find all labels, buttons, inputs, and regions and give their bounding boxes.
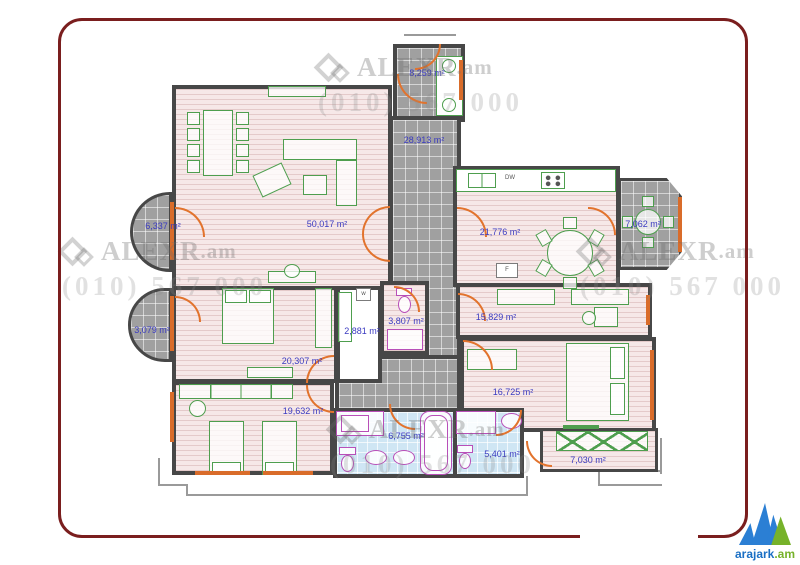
floorplan-page: { "plan": { "rooms": { "living": {"area"… (0, 0, 800, 565)
mountain-logo-icon (739, 503, 791, 545)
logo-name: arajark (735, 547, 774, 561)
frame-gap (580, 528, 698, 538)
logo-text: arajark.am (733, 547, 797, 561)
arajark-logo: arajark.am (733, 503, 797, 561)
logo-tld: .am (774, 547, 795, 561)
decorative-frame (58, 18, 748, 538)
